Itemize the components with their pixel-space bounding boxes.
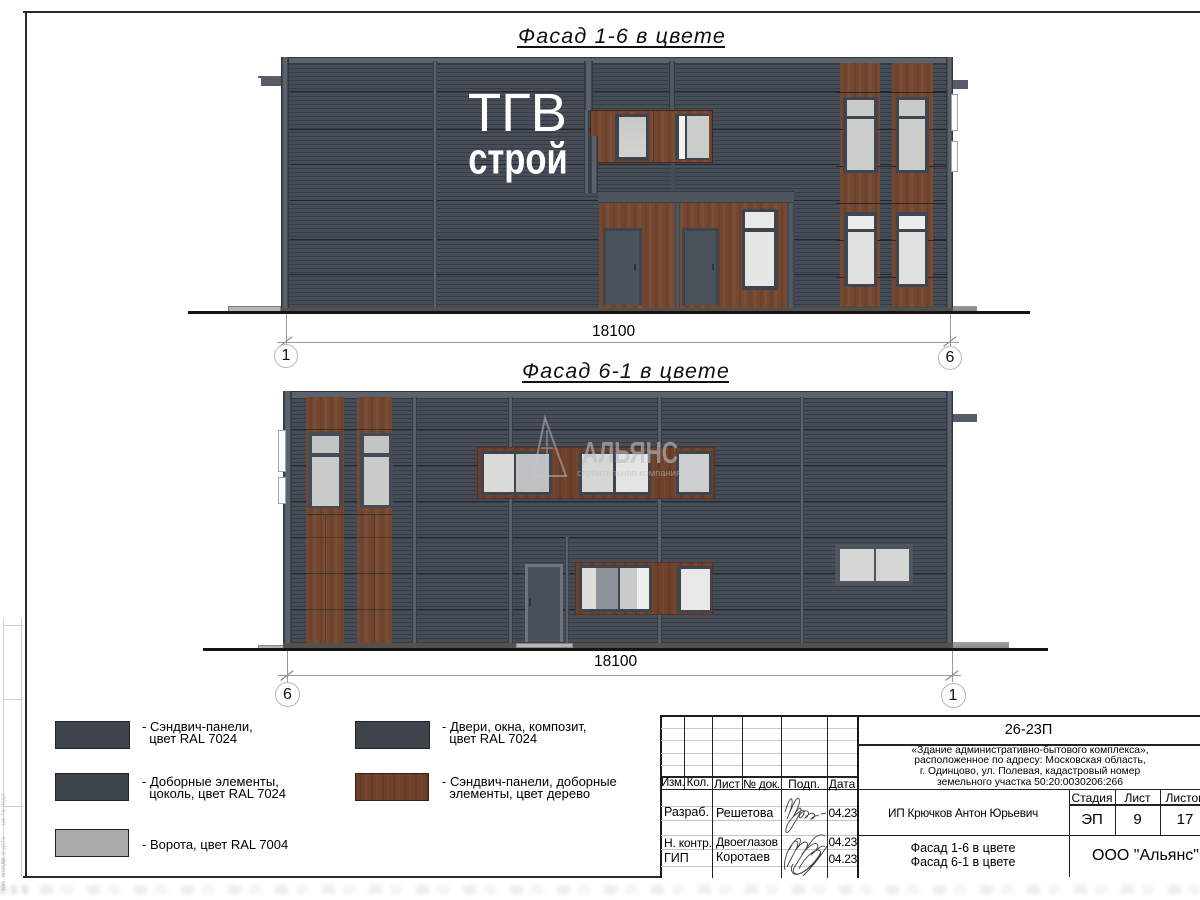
- svg-text:ТГВ: ТГВ: [468, 83, 567, 143]
- svg-text:строительная компания: строительная компания: [577, 468, 681, 478]
- svg-text:АЛЬЯНС: АЛЬЯНС: [582, 435, 678, 470]
- svg-text:строй: строй: [468, 135, 568, 183]
